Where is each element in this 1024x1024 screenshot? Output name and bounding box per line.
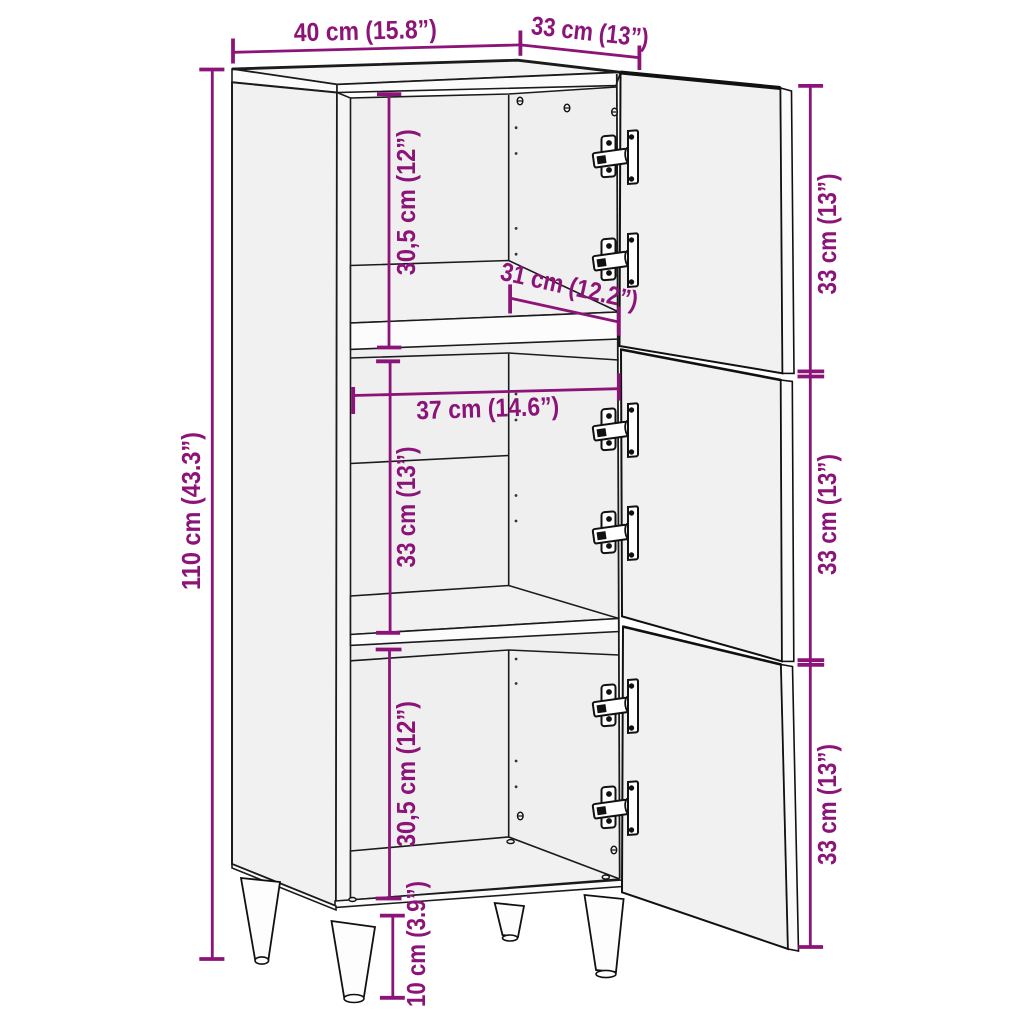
svg-text:37 cm (14.6”): 37 cm (14.6”) bbox=[416, 391, 560, 425]
svg-text:33 cm (13”): 33 cm (13”) bbox=[812, 454, 842, 575]
svg-text:33 cm (13”): 33 cm (13”) bbox=[812, 744, 842, 865]
svg-text:40 cm (15.8”): 40 cm (15.8”) bbox=[293, 14, 437, 48]
svg-text:33 cm (13”): 33 cm (13”) bbox=[812, 174, 842, 295]
svg-text:110 cm (43.3”): 110 cm (43.3”) bbox=[176, 432, 206, 590]
svg-text:30,5 cm (12”): 30,5 cm (12”) bbox=[391, 129, 421, 275]
svg-text:30,5 cm (12”): 30,5 cm (12”) bbox=[391, 701, 421, 847]
svg-text:33 cm (13”): 33 cm (13”) bbox=[391, 447, 421, 568]
svg-text:10 cm (3.9”): 10 cm (3.9”) bbox=[401, 881, 431, 1007]
